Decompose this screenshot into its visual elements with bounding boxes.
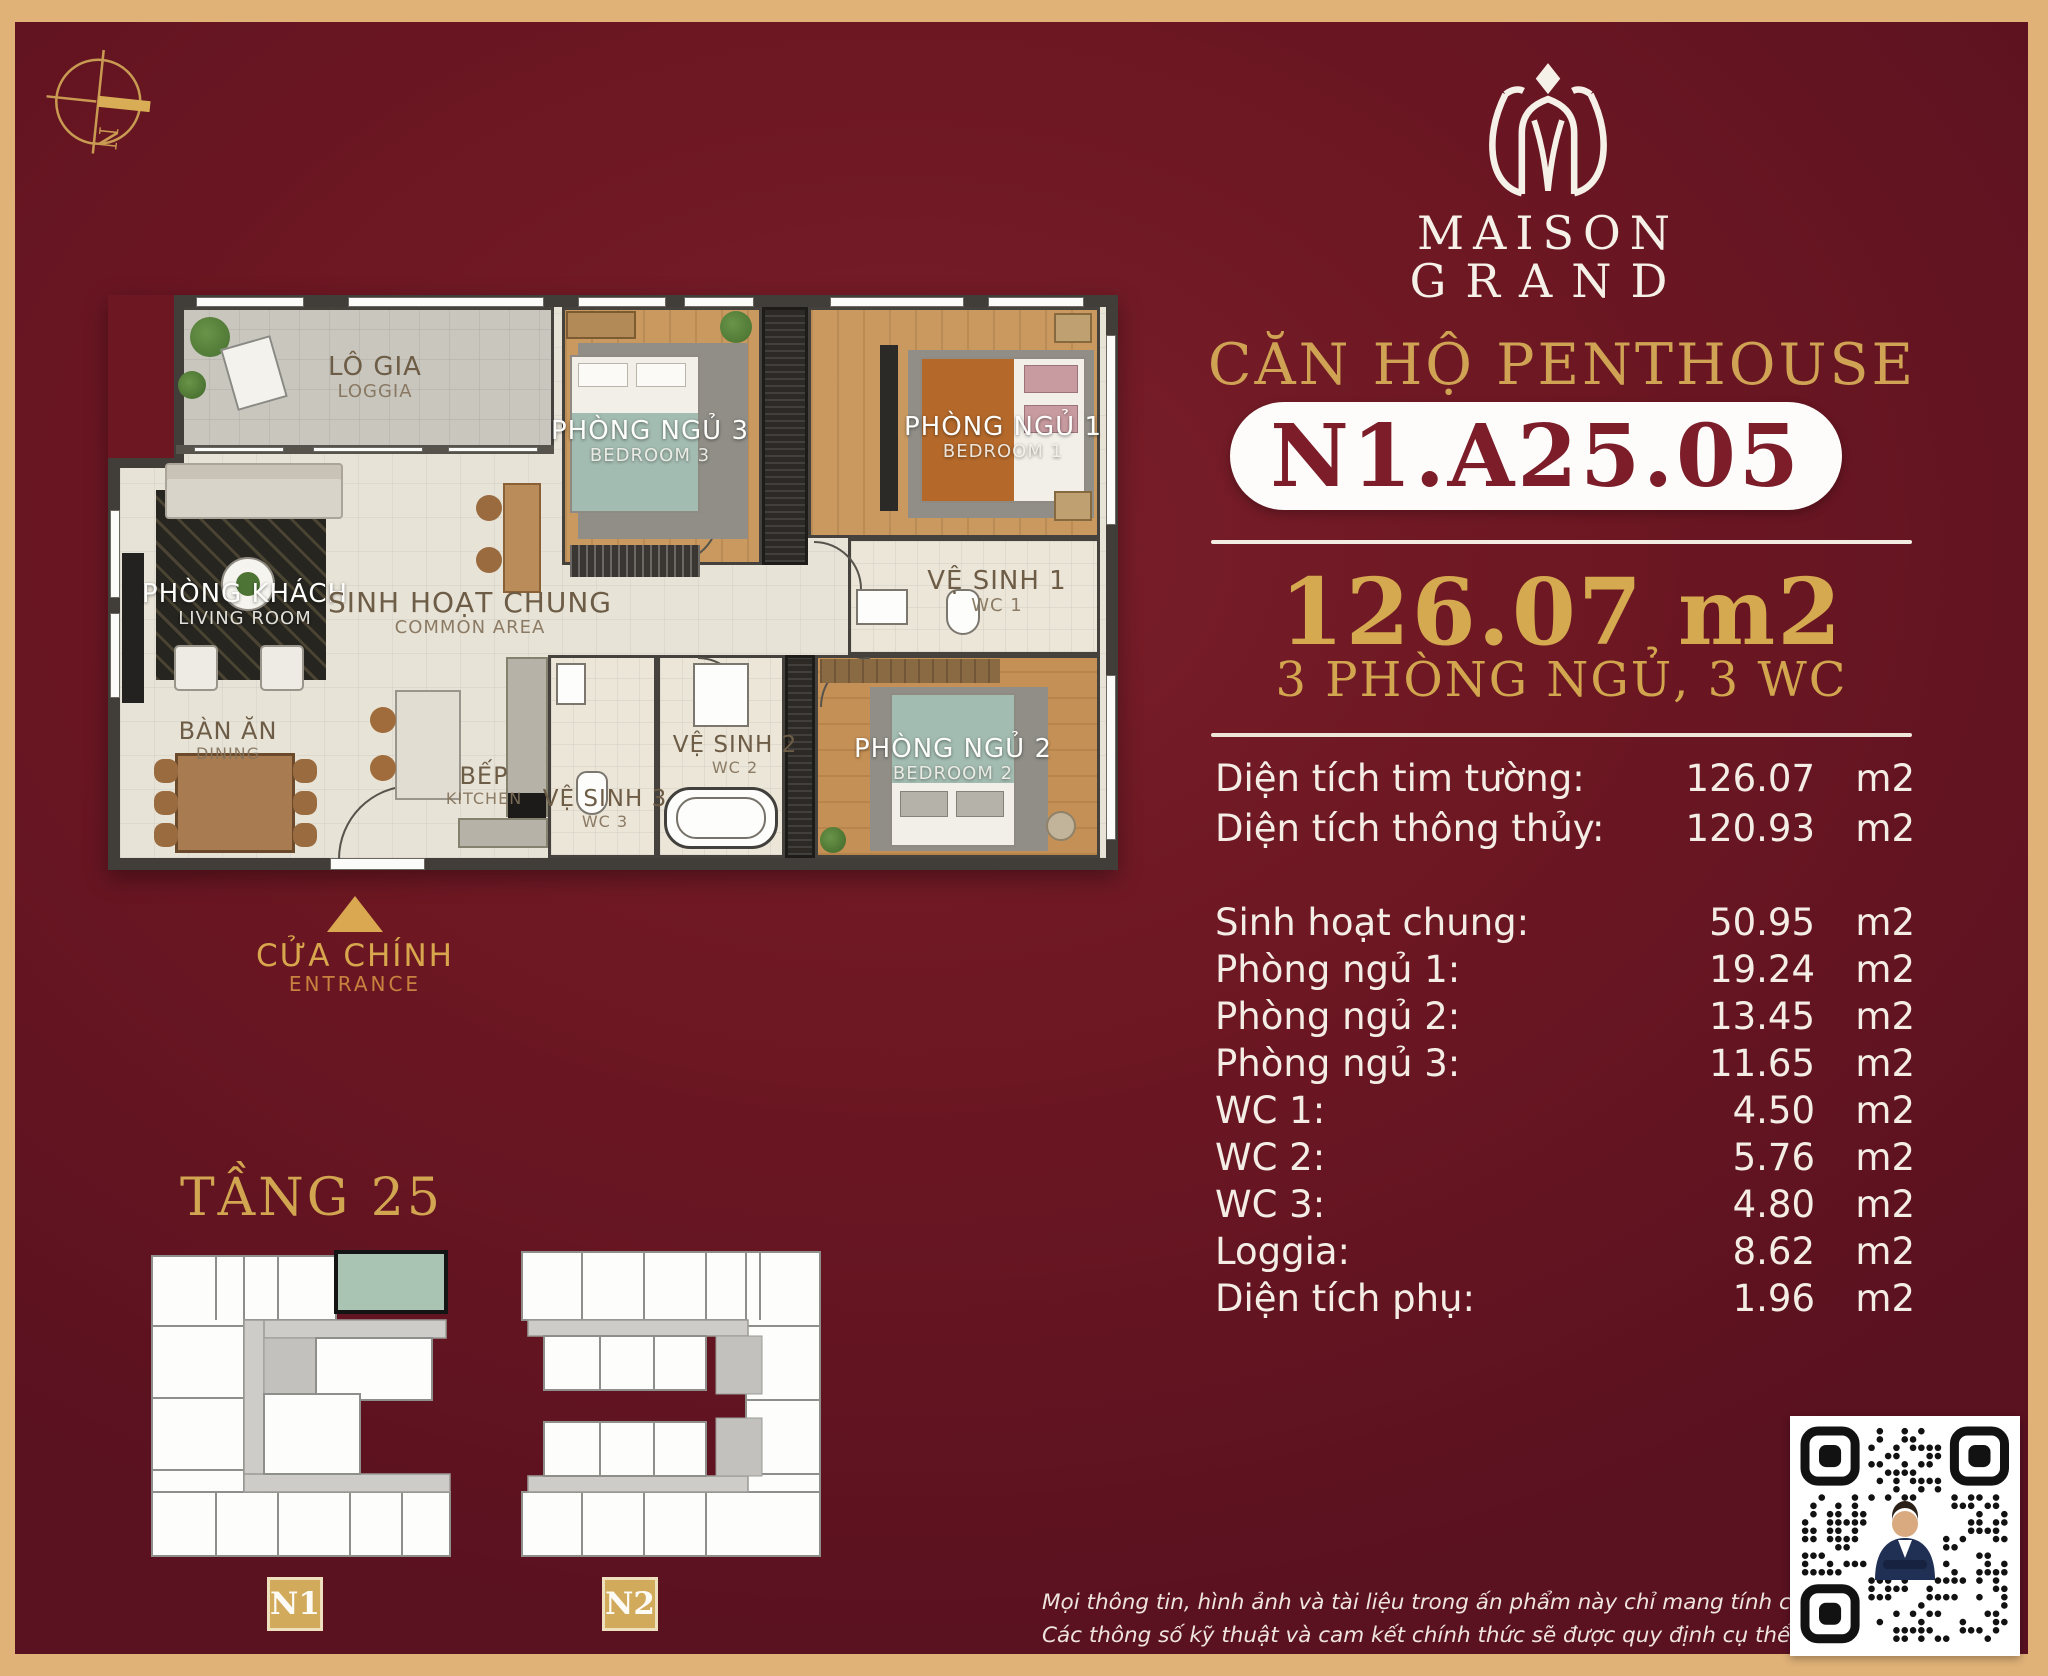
bench (570, 545, 700, 577)
pillow (1024, 365, 1078, 393)
chair (293, 791, 317, 815)
pillow (900, 791, 948, 817)
sink (856, 589, 908, 625)
window (1106, 335, 1116, 525)
logo-diamond (1536, 63, 1561, 94)
pillow (636, 363, 686, 387)
tv-console (122, 553, 144, 703)
wardrobe-strip-1 (762, 307, 808, 565)
unit-code: N1.A25.05 (1270, 406, 1801, 507)
apartment-type-title: CĂN HỘ PENTHOUSE (1206, 332, 1918, 398)
window (194, 447, 284, 452)
area-row: Phòng ngủ 1:19.24m2 (1215, 946, 1915, 993)
window (348, 297, 544, 307)
chair (154, 759, 178, 783)
kitchen-counter (458, 818, 548, 848)
entrance-label-en: ENTRANCE (255, 972, 455, 996)
disclaimer-line1: Mọi thông tin, hình ảnh và tài liệu tron… (1042, 1586, 1794, 1619)
room-label-wc2: VỆ SINH 2WC 2 (673, 733, 797, 777)
bedroom-wc-config: 3 PHÒNG NGỦ, 3 WC (1211, 652, 1912, 708)
area-row: Phòng ngủ 2:13.45m2 (1215, 993, 1915, 1040)
plant (820, 827, 846, 853)
sink (556, 663, 586, 705)
chair (476, 547, 502, 573)
disclaimer-line2: Các thông số kỹ thuật và cam kết chính t… (1042, 1619, 1794, 1652)
side-table (503, 483, 541, 593)
area-row: WC 3:4.80m2 (1215, 1181, 1915, 1228)
window (578, 297, 666, 307)
side-stool (1046, 811, 1076, 841)
room-label-dining: BÀN ĂNDINING (179, 718, 278, 763)
desk (566, 311, 636, 339)
area-row: Diện tích phụ:1.96m2 (1215, 1275, 1915, 1322)
window (830, 297, 964, 307)
sofa (165, 463, 343, 519)
plant (720, 311, 752, 343)
window (196, 297, 304, 307)
area-row: Phòng ngủ 3:11.65m2 (1215, 1040, 1915, 1087)
maison-grand-logo-icon (1458, 56, 1638, 206)
room-label-living: PHÒNG KHÁCHLIVING ROOM (142, 580, 348, 629)
room-label-wc3: VỆ SINH 3WC 3 (543, 787, 667, 831)
window (448, 447, 538, 452)
plan-notch (108, 295, 184, 468)
window (313, 447, 423, 452)
area-row: Sinh hoạt chung:50.95m2 (1215, 899, 1915, 946)
entrance-gap (330, 858, 425, 870)
room-label-common: SINH HOẠT CHUNGCOMMON AREA (328, 587, 612, 639)
chair (154, 823, 178, 847)
vanity (693, 663, 749, 727)
unit-code-badge: N1.A25.05 (1230, 402, 1842, 510)
window (110, 613, 120, 698)
building-badge-n2: N2 (602, 1577, 658, 1631)
window (1106, 675, 1116, 840)
divider-line (1211, 540, 1912, 544)
building-badge-n1: N1 (267, 1577, 323, 1631)
nightstand (1054, 491, 1092, 521)
total-area: 126.07 m2 (1211, 558, 1912, 666)
bar-stool (370, 755, 396, 781)
divider-line (1211, 733, 1912, 737)
dining-table (175, 753, 295, 853)
brand-name-line1: MAISON (1358, 210, 1738, 256)
compass-icon: N (32, 36, 169, 173)
area-row: Loggia:8.62m2 (1215, 1228, 1915, 1275)
chair (154, 791, 178, 815)
keyplan-building-n1 (150, 1250, 452, 1562)
chair (293, 759, 317, 783)
pillow (578, 363, 628, 387)
armchair (260, 645, 304, 691)
area-row: Diện tích thông thủy:120.93m2 (1215, 803, 1915, 853)
floor-plan: LÔ GIALOGGIA PHÒNG NGỦ 3BEDROOM 3 PHÒNG … (108, 295, 1148, 870)
highlighted-unit (336, 1252, 446, 1312)
plant (178, 371, 206, 399)
keyplan-building-n2 (520, 1250, 822, 1562)
room-label-wc1: VỆ SINH 1WC 1 (927, 567, 1066, 616)
area-row: WC 1:4.50m2 (1215, 1087, 1915, 1134)
floor-title: TẦNG 25 (180, 1168, 443, 1228)
nightstand (1054, 313, 1092, 343)
room-label-bedroom1: PHÒNG NGỦ 1BEDROOM 1 (904, 413, 1102, 462)
area-table: Diện tích tim tường:126.07m2Diện tích th… (1215, 753, 1915, 1322)
entrance-arrow-icon (327, 896, 383, 932)
room-label-loggia: LÔ GIALOGGIA (328, 353, 422, 402)
room-label-bedroom2: PHÒNG NGỦ 2BEDROOM 2 (854, 735, 1052, 784)
room-label-kitchen: BẾPKITCHEN (446, 763, 522, 808)
chair (293, 823, 317, 847)
pillow (956, 791, 1004, 817)
chair (476, 495, 502, 521)
disclaimer-text: Mọi thông tin, hình ảnh và tài liệu tron… (1042, 1586, 1794, 1652)
bar-stool (370, 707, 396, 733)
tv-unit (880, 345, 898, 511)
window (988, 297, 1084, 307)
armchair (174, 645, 218, 691)
compass-north-label: N (90, 125, 122, 151)
window (110, 510, 120, 598)
area-row: WC 2:5.76m2 (1215, 1134, 1915, 1181)
brand-name-line2: GRAND (1358, 258, 1738, 304)
shelf (820, 659, 1000, 683)
qr-code (1790, 1416, 2020, 1656)
area-row: Diện tích tim tường:126.07m2 (1215, 753, 1915, 803)
window (684, 297, 754, 307)
room-label-bedroom3: PHÒNG NGỦ 3BEDROOM 3 (551, 417, 749, 466)
entrance-label-vi: CỬA CHÍNH (255, 938, 455, 974)
brochure-page: N (0, 0, 2048, 1676)
bathtub-inner (676, 797, 766, 839)
qr-center-portrait (1875, 1501, 1935, 1580)
